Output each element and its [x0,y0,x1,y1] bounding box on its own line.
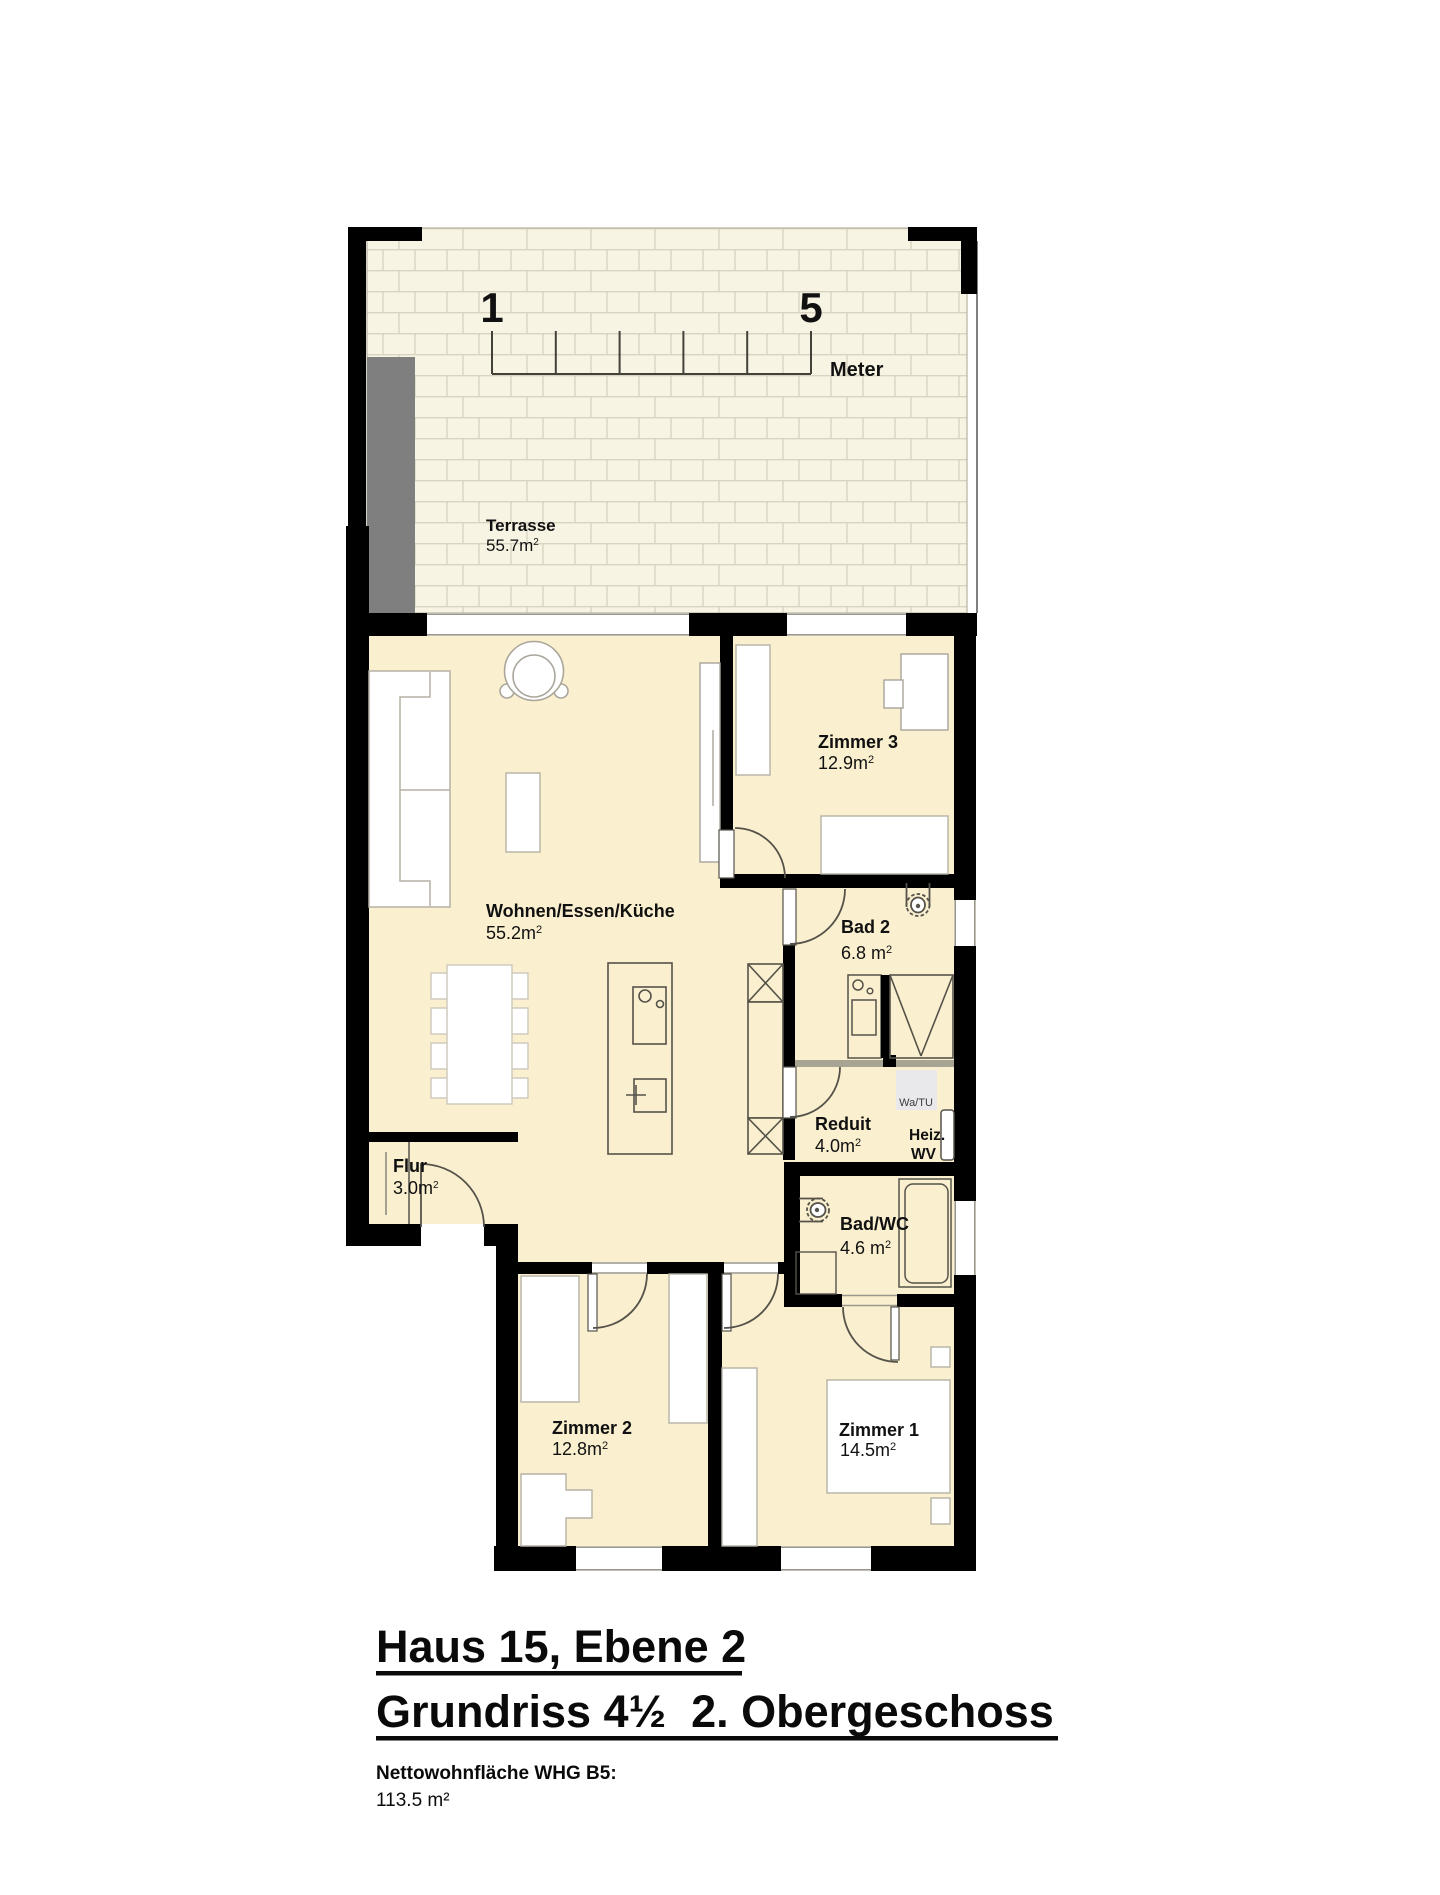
svg-text:Grundriss 4½ 2. Obergeschoss: Grundriss 4½ 2. Obergeschoss [376,1686,1054,1737]
svg-text:Haus 15, Ebene 2: Haus 15, Ebene 2 [376,1621,746,1672]
svg-text:Nettowohnfläche WHG B5:: Nettowohnfläche WHG B5: [376,1763,617,1784]
svg-text:Meter: Meter [830,359,884,381]
svg-text:113.5 m²: 113.5 m² [376,1790,450,1811]
svg-text:1: 1 [480,284,503,331]
svg-text:3.0m2: 3.0m2 [393,1178,439,1198]
svg-text:Bad/WC: Bad/WC [840,1214,909,1234]
svg-text:55.7m2: 55.7m2 [486,536,539,555]
svg-text:12.8m2: 12.8m2 [552,1439,608,1459]
svg-text:Wohnen/Essen/Küche: Wohnen/Essen/Küche [486,901,675,921]
svg-text:Terrasse: Terrasse [486,516,556,535]
svg-text:4.6 m2: 4.6 m2 [840,1238,891,1258]
svg-text:Reduit: Reduit [815,1114,871,1134]
svg-text:Wa/TU: Wa/TU [899,1097,933,1109]
svg-text:Heiz.: Heiz. [909,1127,945,1144]
svg-text:Bad 2: Bad 2 [841,917,890,937]
svg-text:4.0m2: 4.0m2 [815,1136,861,1156]
svg-text:14.5m2: 14.5m2 [840,1440,896,1460]
svg-text:Zimmer 3: Zimmer 3 [818,732,898,752]
svg-text:5: 5 [799,284,822,331]
svg-text:12.9m2: 12.9m2 [818,753,874,773]
svg-text:Zimmer 2: Zimmer 2 [552,1418,632,1438]
svg-text:WV: WV [911,1146,937,1163]
svg-text:Zimmer 1: Zimmer 1 [839,1420,919,1440]
svg-text:55.2m2: 55.2m2 [486,923,542,943]
svg-text:6.8 m2: 6.8 m2 [841,943,892,963]
svg-text:Flur: Flur [393,1156,427,1176]
